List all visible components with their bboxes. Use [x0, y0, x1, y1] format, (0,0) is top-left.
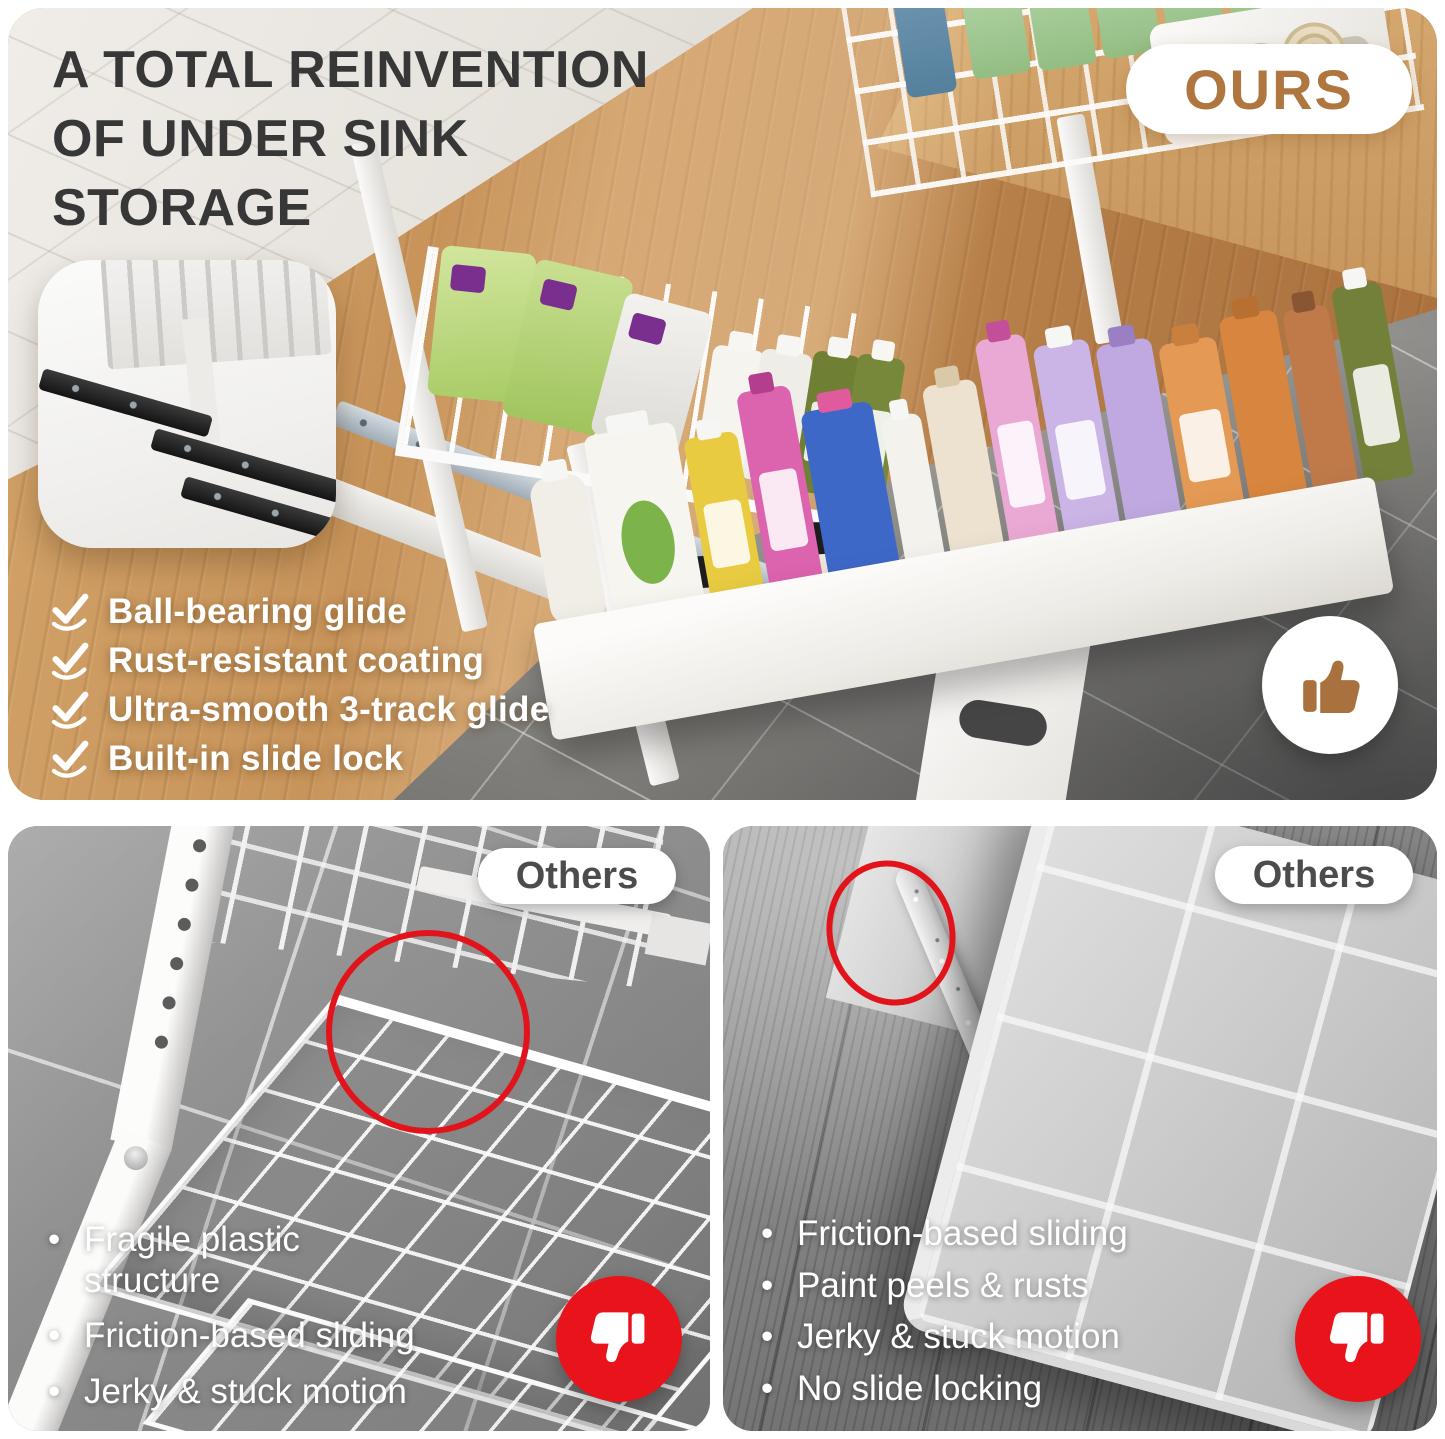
ours-badge: OURS	[1126, 44, 1412, 134]
thumbs-down-icon	[1321, 1302, 1395, 1376]
cons-item: Jerky & stuck motion	[759, 1317, 1219, 1358]
feature-label: Rust-resistant coating	[108, 641, 484, 681]
slide-rail-inset-photo	[38, 260, 336, 548]
hero-photo-panel: A TOTAL REINVENTION OF UNDER SINK STORAG…	[8, 8, 1437, 800]
cons-item: Friction-based sliding	[759, 1214, 1219, 1255]
bolt	[120, 1143, 151, 1174]
feature-item: Ultra-smooth 3-track glide	[48, 688, 550, 732]
feature-label: Built-in slide lock	[108, 739, 403, 779]
title-line: STORAGE	[52, 174, 649, 243]
title-line: A TOTAL REINVENTION	[52, 36, 649, 105]
product-comparison-infographic: A TOTAL REINVENTION OF UNDER SINK STORAG…	[0, 0, 1445, 1439]
cons-item: Paint peels & rusts	[759, 1266, 1219, 1307]
blue-bottle	[891, 8, 957, 99]
feature-item: Built-in slide lock	[48, 737, 550, 781]
others-badge: Others	[1215, 846, 1413, 904]
cons-list: Fragile plastic structure Friction-based…	[46, 1220, 476, 1427]
green-bottle	[1024, 8, 1097, 72]
feature-item: Rust-resistant coating	[48, 639, 550, 683]
thumbs-up-icon	[1291, 646, 1369, 724]
thumbs-up-badge	[1262, 616, 1398, 754]
thumbs-down-icon	[582, 1302, 656, 1376]
check-icon	[48, 639, 92, 683]
cons-item: No slide locking	[759, 1369, 1219, 1410]
green-bottle	[959, 8, 1031, 80]
feature-label: Ball-bearing glide	[108, 592, 407, 632]
feature-item: Ball-bearing glide	[48, 590, 550, 634]
cons-item: Jerky & stuck motion	[46, 1372, 476, 1413]
thumbs-down-badge	[1295, 1276, 1421, 1402]
title-line: OF UNDER SINK	[52, 105, 649, 174]
others-panel-rusty-rail: Others Friction-based sliding Paint peel…	[723, 826, 1437, 1431]
feature-list: Ball-bearing glide Rust-resistant coatin…	[48, 590, 550, 781]
feature-label: Ultra-smooth 3-track glide	[108, 690, 550, 730]
red-highlight-circle	[326, 930, 530, 1134]
others-badge: Others	[478, 848, 676, 904]
inset-basket	[100, 260, 331, 370]
check-icon	[48, 737, 92, 781]
thumbs-down-badge	[556, 1276, 682, 1402]
cons-item: Friction-based sliding	[46, 1316, 476, 1357]
check-icon	[48, 590, 92, 634]
others-panel-wire-basket: Others Fragile plastic structure Frictio…	[8, 826, 710, 1431]
cons-list: Friction-based sliding Paint peels & rus…	[759, 1214, 1219, 1420]
page-title: A TOTAL REINVENTION OF UNDER SINK STORAG…	[52, 36, 649, 243]
cons-item: Fragile plastic structure	[46, 1220, 414, 1301]
check-icon	[48, 688, 92, 732]
